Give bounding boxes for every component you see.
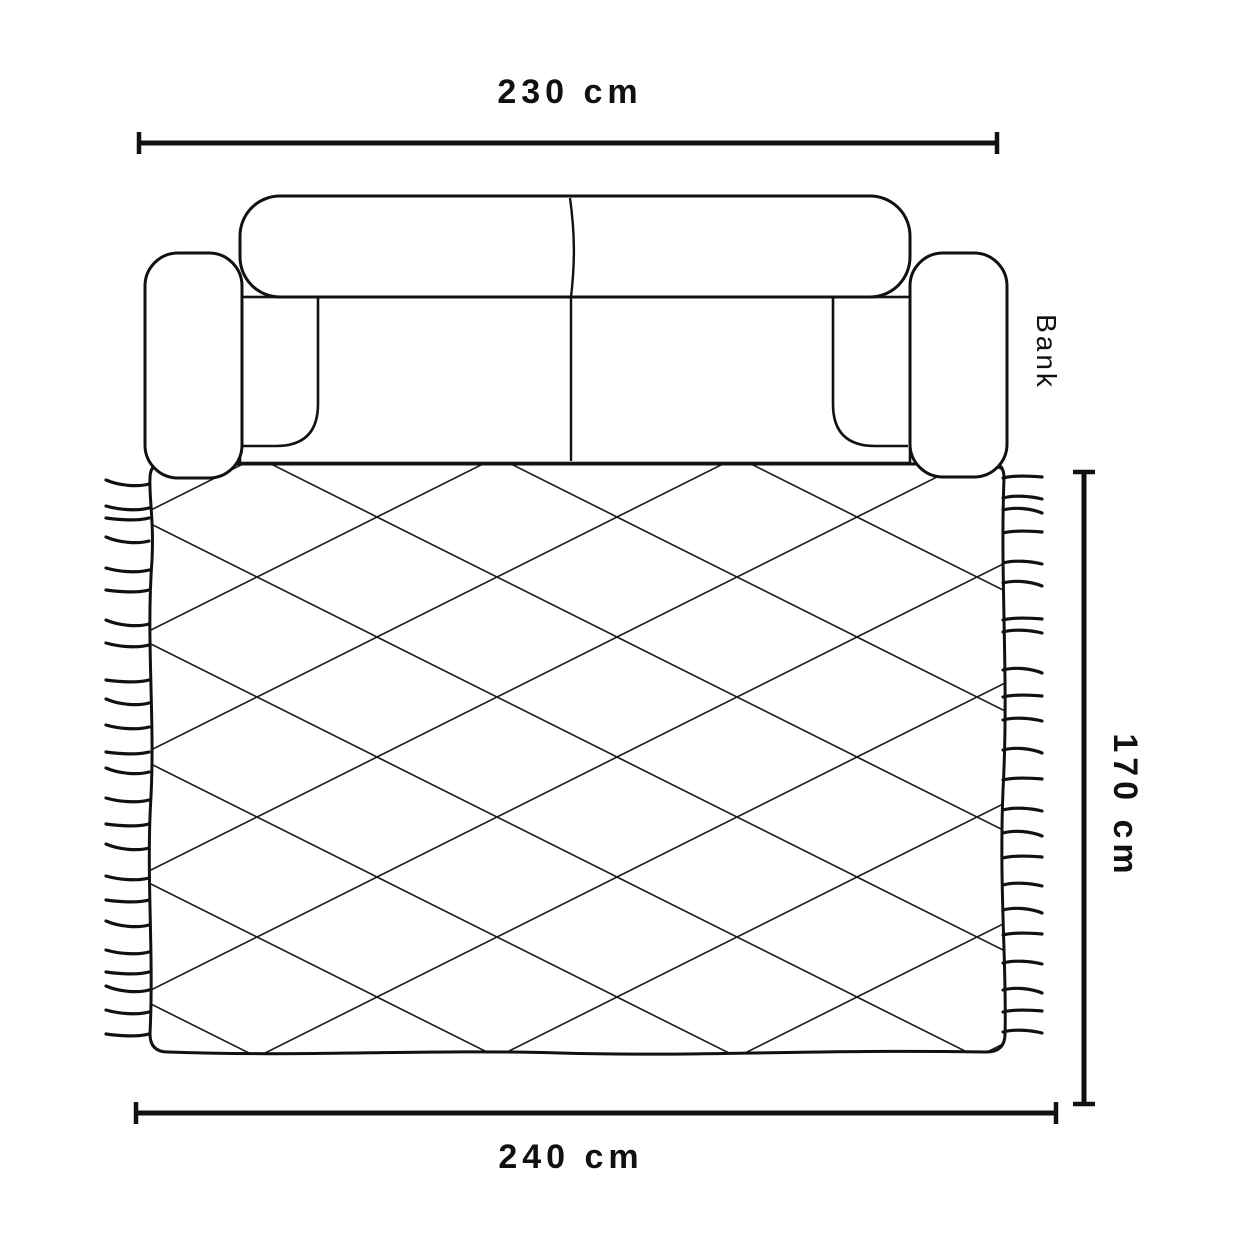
- rug-fringe: [1003, 695, 1042, 697]
- rug-fringe: [1003, 961, 1042, 964]
- dimension-line-top: [139, 132, 997, 154]
- rug-fringe: [1003, 1030, 1042, 1033]
- rug-fringe: [1003, 856, 1042, 858]
- label-sofa-name: Bank: [1031, 314, 1062, 390]
- rug-fringe: [1003, 561, 1042, 564]
- rug-fringe: [106, 480, 149, 486]
- rug-fringe: [1003, 933, 1042, 935]
- rug-fringe: [1003, 630, 1042, 633]
- dimension-line-bottom: [136, 1102, 1056, 1124]
- rug-fringe: [1003, 908, 1042, 913]
- rug-fringe: [106, 506, 149, 510]
- label-rug-width: 240 cm: [498, 1138, 643, 1176]
- rug-fringe: [106, 699, 149, 705]
- rug-fringe: [1003, 988, 1042, 993]
- sofa: [145, 196, 1007, 478]
- rug-fringes-right: [1003, 476, 1042, 1033]
- rug-fringe: [1003, 808, 1042, 811]
- rug-fringe: [106, 680, 149, 682]
- diagram-svg: 230 cm 240 cm 170 cm Bank: [0, 0, 1240, 1240]
- rug-fringe: [1003, 531, 1042, 533]
- rug-fringe: [106, 798, 149, 802]
- rug-fringe: [1003, 476, 1042, 478]
- rug-fringe: [106, 900, 149, 902]
- rug-fringe: [106, 568, 149, 572]
- rug-fringe: [106, 986, 149, 992]
- rug-fringe: [106, 537, 149, 543]
- rug-fringe: [106, 972, 149, 974]
- rug-fringe: [106, 1010, 149, 1014]
- rug-fringe: [1003, 718, 1042, 721]
- label-rug-height: 170 cm: [1106, 733, 1144, 878]
- rug-fringe: [1003, 581, 1042, 586]
- rug: [106, 464, 1042, 1054]
- rug-fringes-left: [106, 480, 149, 1036]
- rug-fringe: [1003, 883, 1042, 886]
- rug-fringe: [1003, 748, 1042, 753]
- rug-fringe: [106, 752, 149, 754]
- rug-fringe: [1003, 1010, 1042, 1012]
- rug-fringe: [106, 768, 149, 774]
- rug-fringe: [106, 1034, 149, 1036]
- rug-fringe: [1003, 778, 1042, 780]
- rug-fringe: [1003, 496, 1042, 499]
- rug-fringe: [106, 921, 149, 927]
- dimension-diagram: 230 cm 240 cm 170 cm Bank: [0, 0, 1240, 1240]
- rug-fringe: [106, 590, 149, 592]
- rug-fringe: [106, 844, 149, 850]
- rug-fringe: [106, 518, 149, 520]
- rug-fringe: [106, 876, 149, 880]
- rug-fringe: [106, 950, 149, 954]
- sofa-armrest-right: [910, 253, 1007, 477]
- dimension-line-right: [1073, 472, 1095, 1104]
- rug-fringe: [1003, 508, 1042, 513]
- rug-fringe: [106, 643, 149, 647]
- sofa-seat: [240, 297, 910, 463]
- rug-fringe: [1003, 668, 1042, 673]
- sofa-backrest: [240, 196, 910, 297]
- label-sofa-width: 230 cm: [497, 73, 642, 111]
- sofa-armrest-left: [145, 253, 242, 478]
- rug-fringe: [106, 824, 149, 826]
- rug-fringe: [1003, 831, 1042, 836]
- rug-outline: [149, 464, 1005, 1054]
- rug-fringe: [106, 725, 149, 729]
- rug-fringe: [106, 620, 149, 626]
- rug-fringe: [1003, 618, 1042, 620]
